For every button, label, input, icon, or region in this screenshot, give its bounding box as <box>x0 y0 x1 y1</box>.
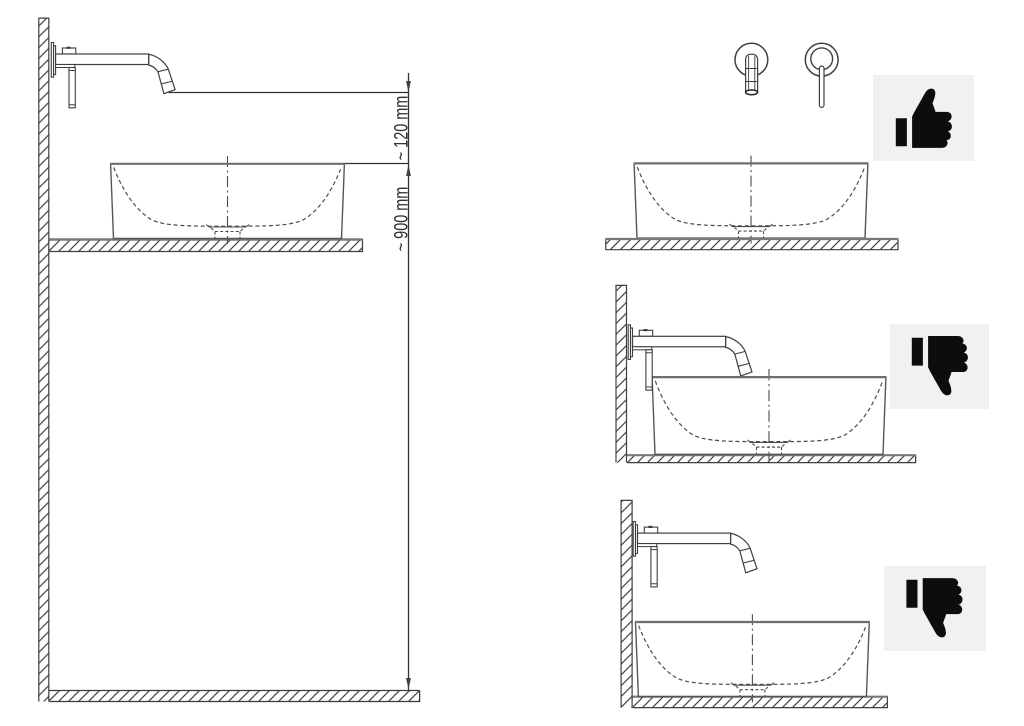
svg-text:~ 120 mm: ~ 120 mm <box>389 96 412 161</box>
svg-text:~ 900 mm: ~ 900 mm <box>389 187 412 252</box>
